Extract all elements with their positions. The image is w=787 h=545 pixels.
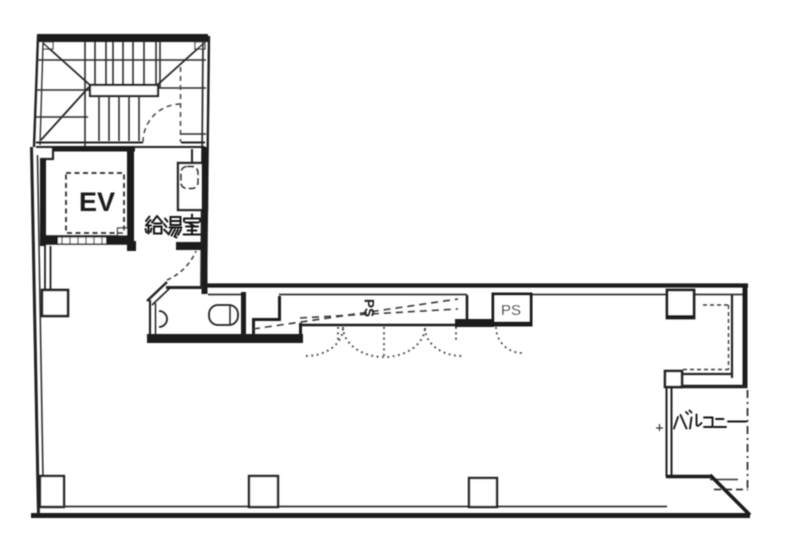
svg-text:PS: PS bbox=[501, 302, 521, 319]
svg-text:PS: PS bbox=[362, 299, 377, 317]
svg-text:EV: EV bbox=[79, 187, 115, 217]
